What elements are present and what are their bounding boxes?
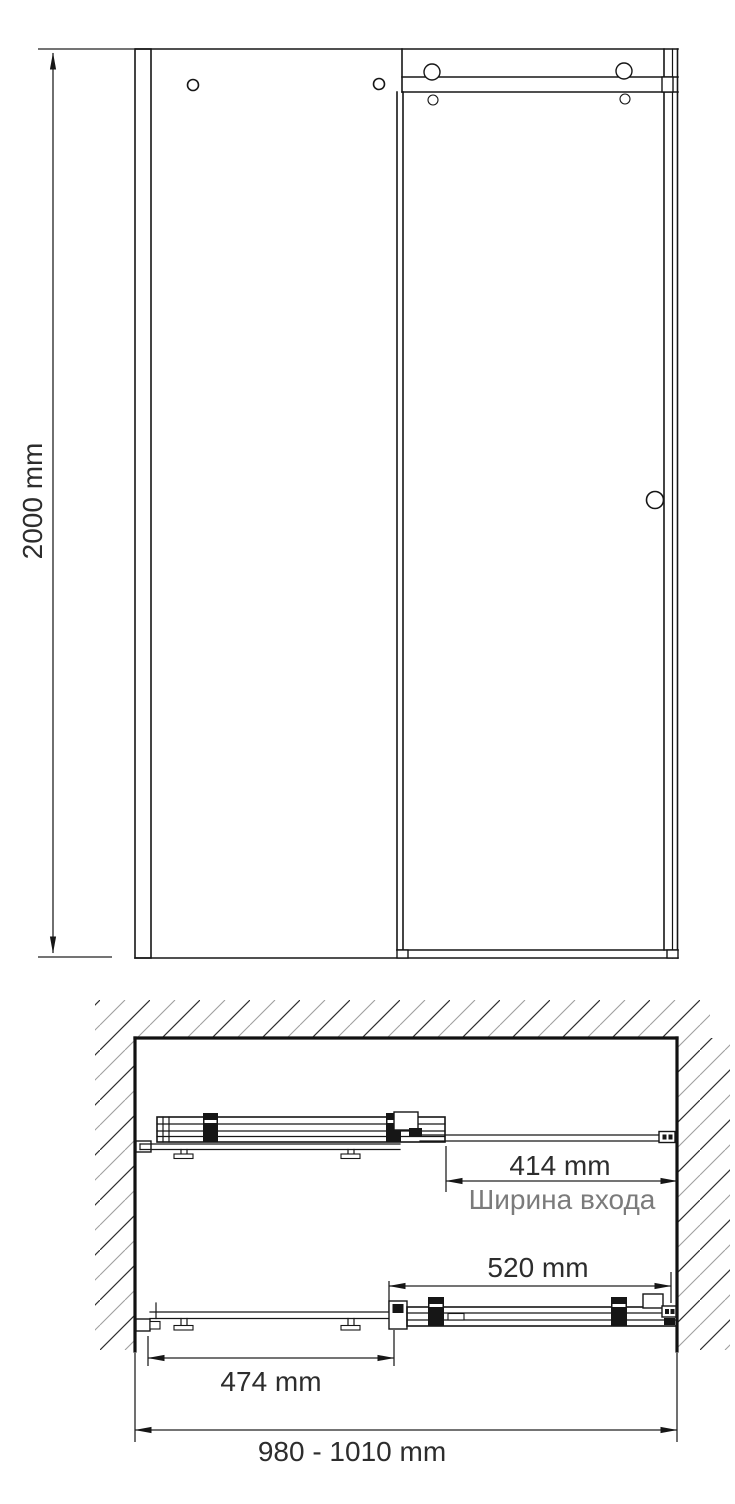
overall-width-dimension: 980 - 1010 mm — [135, 1353, 677, 1467]
fixed-panel-width-label: 474 mm — [220, 1366, 321, 1397]
handle-bracket-plan — [394, 1112, 418, 1130]
door-panel-width-label: 520 mm — [487, 1252, 588, 1283]
guide-wheel-left — [428, 95, 438, 105]
floor-guide-left — [174, 1319, 193, 1331]
overall-width-label: 980 - 1010 mm — [258, 1436, 446, 1467]
height-dimension: 2000 mm — [17, 49, 134, 957]
fixed-panel-plan — [136, 1141, 400, 1159]
wall-right — [677, 1038, 730, 1350]
wall-profile-left — [135, 49, 151, 958]
sliding-glass-panel — [397, 63, 678, 958]
floor-guide-right — [341, 1319, 360, 1331]
closed-position-assembly — [136, 1294, 677, 1331]
rail-end-cap — [659, 1132, 675, 1143]
wall-top — [95, 1000, 710, 1038]
track-wall-bracket — [662, 77, 673, 92]
wall-hatching — [95, 1000, 730, 1351]
bottom-guide-rail — [397, 950, 678, 958]
overlap-seal-profile — [389, 1301, 407, 1329]
roller-carriage-left — [428, 1297, 444, 1326]
roller-carriage-left — [203, 1113, 218, 1142]
wall-left — [95, 1038, 135, 1350]
wall-bracket — [136, 1141, 151, 1152]
door-handle-knob — [647, 492, 664, 509]
door-frame — [135, 49, 678, 958]
mounting-hole-left — [188, 80, 199, 91]
fixed-panel-width-dimension: 474 mm — [148, 1330, 394, 1397]
fixed-panel-plan — [136, 1303, 396, 1331]
top-rail-plan — [420, 1132, 677, 1143]
fixed-glass-panel — [188, 79, 385, 91]
latch-detail — [448, 1314, 464, 1321]
roller-carriage-right — [611, 1297, 627, 1326]
front-view: 2000 mm — [17, 49, 678, 958]
handle-bracket-plan — [643, 1294, 663, 1308]
sliding-panel-plan — [407, 1294, 677, 1326]
entrance-width-dimension: 414 mm Ширина входа — [446, 1146, 677, 1215]
mounting-hole-right — [374, 79, 385, 90]
entrance-width-caption: Ширина входа — [469, 1184, 656, 1215]
guide-wheel-right — [620, 94, 630, 104]
top-track — [402, 49, 678, 92]
roller-wheel-right — [616, 63, 632, 79]
wall-bracket — [136, 1319, 150, 1331]
sliding-panel-plan — [157, 1112, 445, 1142]
shower-door-technical-drawing: 2000 mm — [0, 0, 735, 1504]
rail-end-cap — [662, 1306, 676, 1325]
floor-guide-left — [174, 1150, 193, 1159]
entrance-width-label: 414 mm — [509, 1150, 610, 1181]
plan-view: 414 mm Ширина входа 520 mm — [95, 1000, 730, 1467]
stopper-block — [409, 1128, 422, 1137]
floor-guide-right — [341, 1150, 360, 1159]
height-dimension-label: 2000 mm — [17, 443, 48, 560]
roller-wheel-left — [424, 64, 440, 80]
